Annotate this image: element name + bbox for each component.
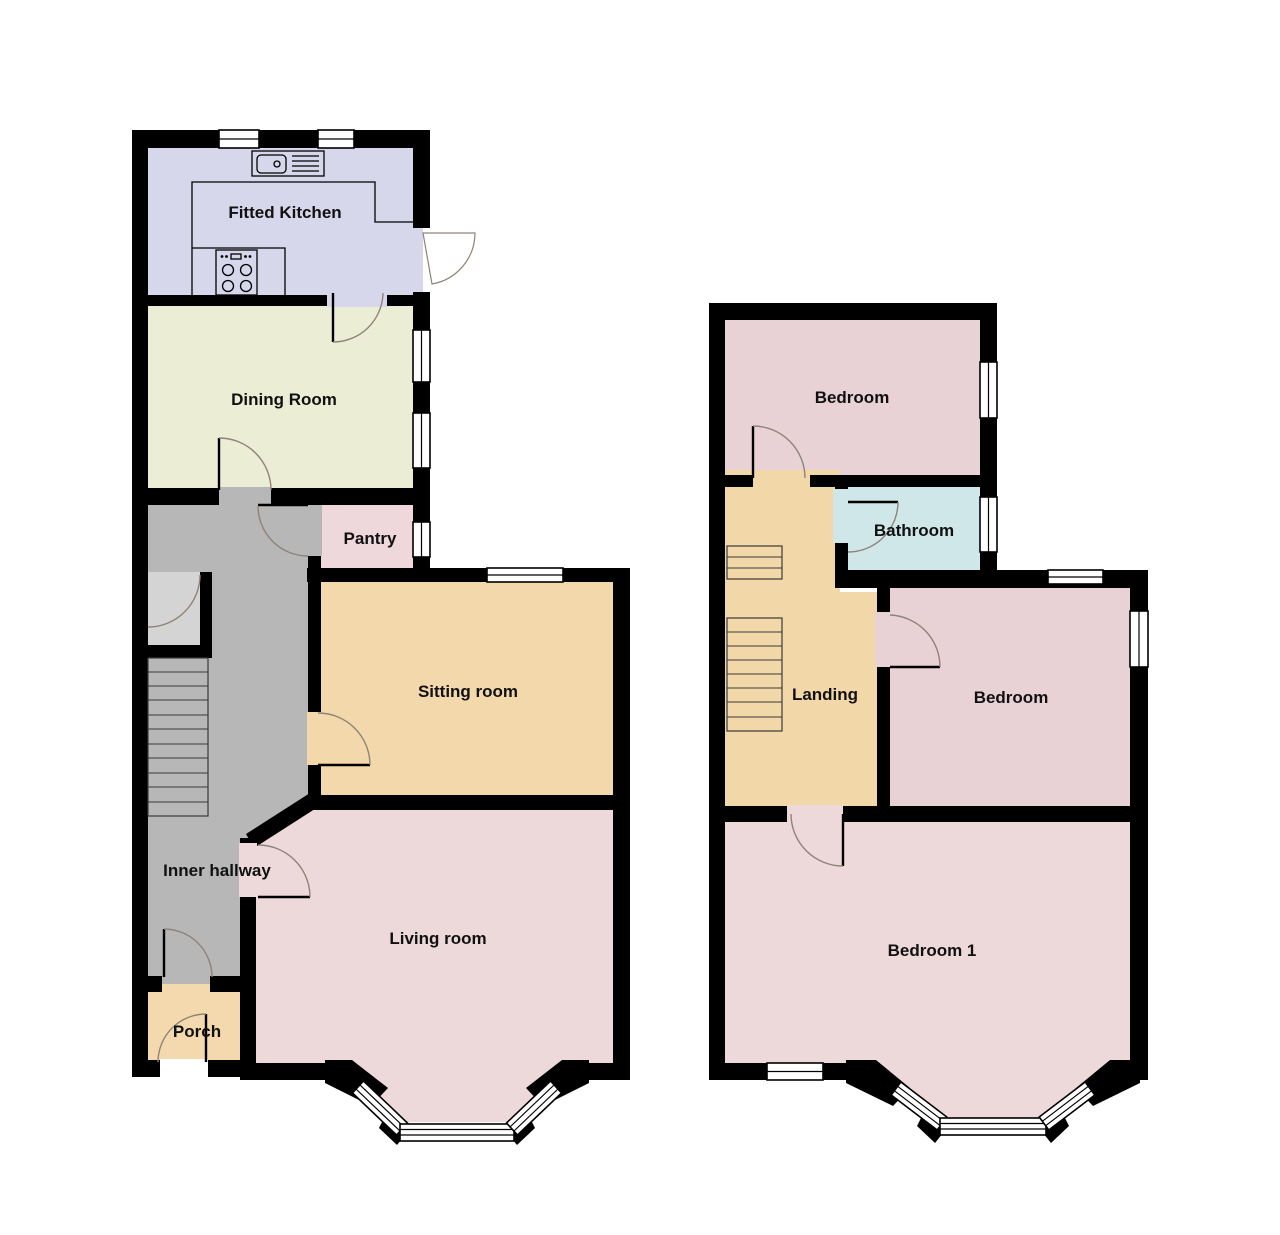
wall	[132, 488, 430, 505]
doorway-dining-hallway	[219, 487, 271, 506]
label-dining: Dining Room	[231, 390, 337, 409]
wall	[307, 568, 630, 582]
label-pantry: Pantry	[344, 529, 397, 548]
wall	[613, 568, 630, 1080]
understairs-closet-fill	[148, 572, 200, 645]
wall	[132, 130, 148, 1077]
doorway-bedroom1	[787, 805, 843, 823]
doorway-bedroom-top	[753, 474, 810, 488]
wall-porch-front	[208, 1060, 253, 1077]
stove-knob	[225, 255, 228, 258]
wall-closet-bottom	[148, 645, 212, 658]
label-landing: Landing	[792, 685, 858, 704]
floorplan-canvas: Fitted Kitchen Dining Room Pantry Sittin…	[0, 0, 1280, 1235]
stove-knob	[244, 255, 247, 258]
bay-window-center	[940, 1118, 1046, 1135]
wall	[709, 806, 1148, 822]
label-bathroom: Bathroom	[874, 521, 954, 540]
doorway-hall-porch	[162, 976, 210, 984]
wall-bottom	[253, 1063, 330, 1080]
bay-window-center	[400, 1124, 514, 1141]
doorway-hall-porch	[162, 984, 210, 992]
wall-porch	[132, 976, 162, 992]
wall	[312, 795, 630, 810]
label-porch: Porch	[173, 1022, 221, 1041]
doorway-kitchen-dining	[327, 294, 387, 307]
wall-porch	[210, 976, 253, 992]
label-bedroom-mid: Bedroom	[974, 688, 1049, 707]
wall-bottom	[584, 1063, 630, 1080]
doorway-bedroom-mid	[875, 612, 892, 667]
first-room-fills	[725, 315, 1140, 1120]
label-kitchen: Fitted Kitchen	[228, 203, 341, 222]
doorway-bathroom	[833, 489, 850, 543]
room-kitchen-fill	[148, 148, 413, 300]
doorway-sitting	[307, 712, 322, 765]
label-sitting: Sitting room	[418, 682, 518, 701]
wall-porch-front	[132, 1060, 160, 1077]
doorway-pantry	[307, 505, 322, 556]
label-bedroom1: Bedroom 1	[888, 941, 977, 960]
front-door-opening	[160, 1059, 208, 1078]
wall	[132, 130, 430, 148]
floorplan-page: Fitted Kitchen Dining Room Pantry Sittin…	[0, 0, 1280, 1235]
label-living: Living room	[389, 929, 486, 948]
first-floor-plan: Bedroom Bathroom Landing Bedroom Bedroom…	[709, 303, 1148, 1143]
stove-knob	[249, 255, 252, 258]
label-hallway: Inner hallway	[163, 861, 271, 880]
wall	[709, 303, 725, 1080]
side-door-swing	[423, 233, 475, 284]
stove-knob	[221, 255, 224, 258]
side-door-opening	[413, 228, 423, 292]
wall	[709, 303, 997, 320]
ground-floor-plan: Fitted Kitchen Dining Room Pantry Sittin…	[132, 130, 630, 1145]
label-bedroom-top: Bedroom	[815, 388, 890, 407]
